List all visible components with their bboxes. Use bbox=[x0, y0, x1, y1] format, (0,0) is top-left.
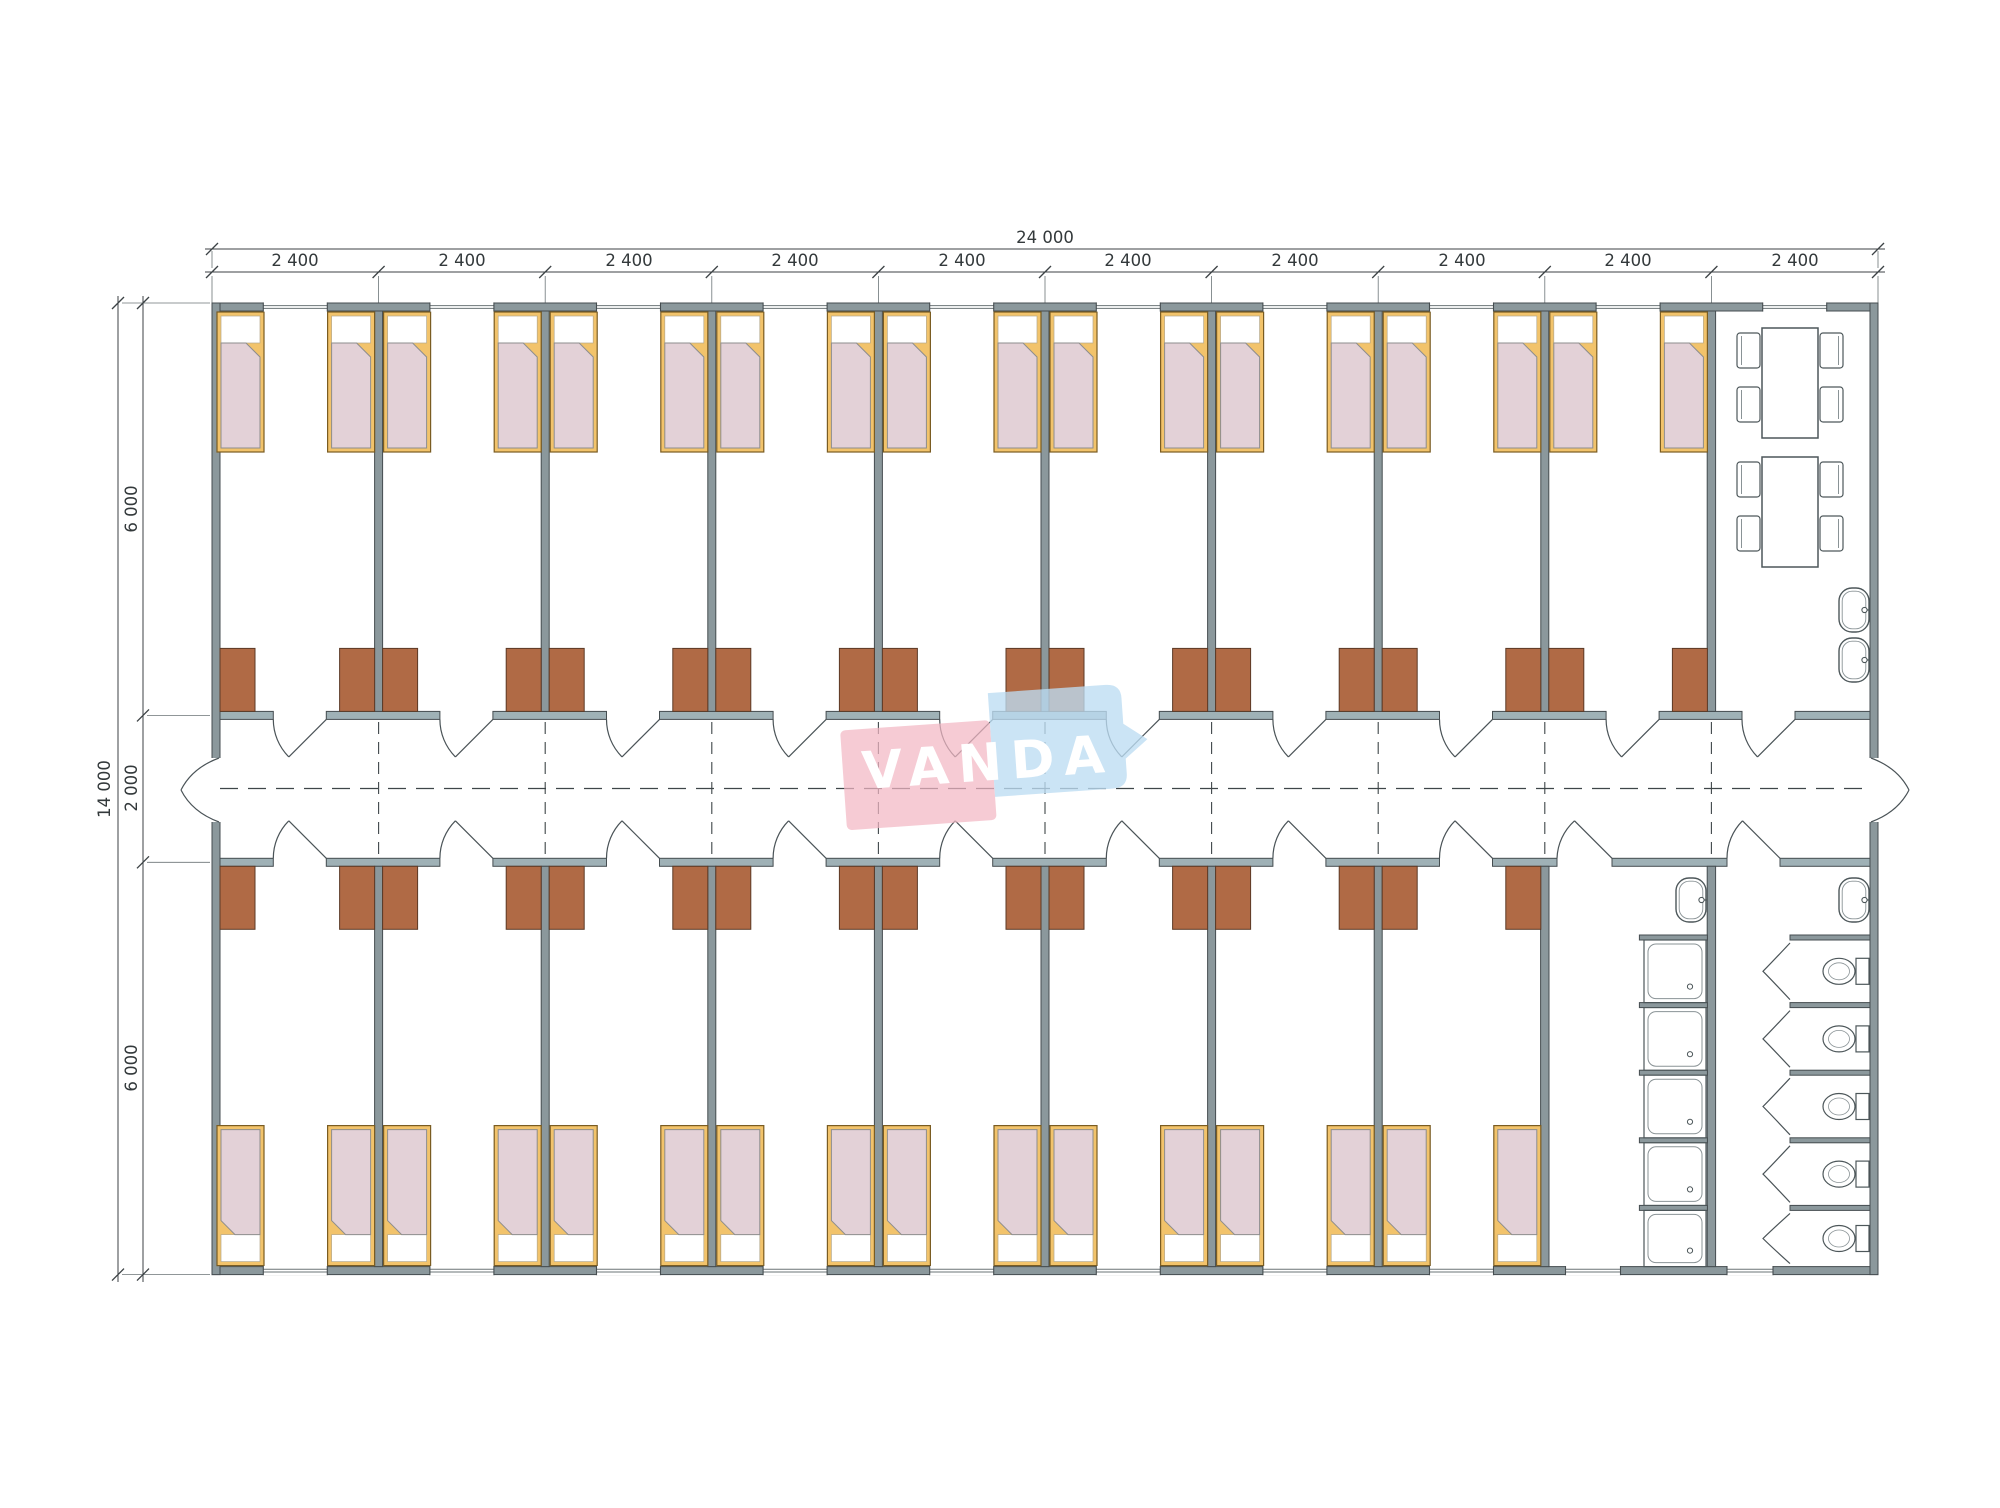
partition-wall bbox=[708, 866, 716, 1266]
bed-duvet bbox=[1054, 1130, 1093, 1235]
bed-duvet bbox=[887, 1130, 926, 1235]
door-swing bbox=[273, 821, 289, 859]
bed bbox=[1494, 312, 1541, 452]
door-leaf bbox=[1455, 719, 1493, 757]
door-leaf bbox=[289, 821, 327, 859]
window bbox=[1727, 1266, 1773, 1275]
bed-pillow bbox=[1165, 316, 1204, 343]
window bbox=[763, 1266, 827, 1275]
wardrobe bbox=[549, 648, 584, 711]
partition-wall bbox=[1041, 866, 1049, 1266]
bed-duvet bbox=[332, 343, 371, 448]
bed-duvet bbox=[221, 1130, 260, 1235]
bed-duvet bbox=[1331, 1130, 1370, 1235]
bed bbox=[661, 312, 708, 452]
wardrobe bbox=[1339, 866, 1374, 929]
bed-pillow bbox=[887, 1235, 926, 1262]
dining-table bbox=[1762, 328, 1818, 438]
sink bbox=[1839, 638, 1870, 682]
bed-pillow bbox=[721, 1235, 760, 1262]
wc-stall-wall bbox=[1790, 1138, 1870, 1143]
bed bbox=[550, 312, 597, 452]
bed-duvet bbox=[1498, 343, 1537, 448]
corridor-wall-bottom bbox=[1326, 858, 1440, 866]
door-leaf bbox=[289, 719, 327, 757]
window bbox=[1430, 1266, 1494, 1275]
bed-pillow bbox=[721, 316, 760, 343]
bed-pillow bbox=[332, 1235, 371, 1262]
door-leaf bbox=[1288, 821, 1326, 859]
door-leaf bbox=[1758, 719, 1796, 757]
bed-pillow bbox=[1664, 316, 1703, 343]
partition-wall bbox=[375, 866, 383, 1266]
partition-wall bbox=[375, 311, 383, 711]
bed-duvet bbox=[721, 343, 760, 448]
bed-duvet bbox=[554, 343, 593, 448]
bed bbox=[883, 312, 930, 452]
shower-tray bbox=[1644, 1210, 1706, 1266]
partition-wall bbox=[1541, 311, 1549, 711]
wardrobe bbox=[1672, 648, 1707, 711]
wardrobe bbox=[673, 648, 708, 711]
door-swing bbox=[773, 821, 789, 859]
bed-pillow bbox=[554, 316, 593, 343]
bed bbox=[1161, 1126, 1208, 1266]
bed-pillow bbox=[221, 316, 260, 343]
corridor-wall-bottom bbox=[1159, 858, 1273, 866]
bed-pillow bbox=[221, 1235, 260, 1262]
corridor-wall-bottom bbox=[1612, 858, 1727, 866]
sink-tap-knob bbox=[1862, 657, 1867, 662]
shower-drain bbox=[1687, 984, 1692, 989]
sink bbox=[1839, 588, 1870, 632]
dim-module-8: 2 400 bbox=[1438, 251, 1485, 270]
partition-wall bbox=[874, 866, 882, 1266]
toilet-tank bbox=[1856, 1226, 1869, 1252]
bed bbox=[717, 1126, 764, 1266]
bed bbox=[1050, 312, 1097, 452]
bed-pillow bbox=[665, 316, 704, 343]
bed bbox=[1217, 1126, 1264, 1266]
shower-partition bbox=[1639, 1205, 1707, 1210]
bed bbox=[494, 312, 541, 452]
window bbox=[1596, 302, 1660, 311]
bed bbox=[1327, 312, 1374, 452]
door-leaf bbox=[455, 719, 493, 757]
sink bbox=[1676, 878, 1707, 922]
bed bbox=[1217, 312, 1264, 452]
bed bbox=[1327, 1126, 1374, 1266]
sink bbox=[1839, 878, 1870, 922]
washroom-wall bbox=[1541, 866, 1549, 1266]
corridor-wall-bottom bbox=[220, 858, 273, 866]
wc-wall bbox=[1707, 866, 1715, 1266]
door-leaf bbox=[622, 821, 660, 859]
wardrobe bbox=[673, 866, 708, 929]
shower-partition bbox=[1639, 1138, 1707, 1143]
chair bbox=[1820, 387, 1843, 422]
bed-duvet bbox=[831, 1130, 870, 1235]
shower-partition bbox=[1639, 1070, 1707, 1075]
door-leaf bbox=[1122, 821, 1160, 859]
window bbox=[930, 1266, 994, 1275]
toilet-bowl bbox=[1823, 1226, 1855, 1252]
wardrobe bbox=[1506, 866, 1541, 929]
toilet-bowl bbox=[1823, 958, 1855, 984]
window bbox=[1096, 302, 1160, 311]
wc-stall-door-swing bbox=[1763, 1011, 1790, 1068]
bed-pillow bbox=[887, 316, 926, 343]
bed-pillow bbox=[1221, 1235, 1260, 1262]
dim-module-1: 2 400 bbox=[271, 251, 318, 270]
wardrobe bbox=[1216, 866, 1251, 929]
chair bbox=[1737, 516, 1760, 551]
corridor-wall-top bbox=[1795, 711, 1870, 719]
partition-wall bbox=[1208, 866, 1216, 1266]
door-leaf bbox=[789, 821, 827, 859]
wardrobe bbox=[1549, 648, 1584, 711]
wardrobe bbox=[1173, 648, 1208, 711]
bed-duvet bbox=[388, 1130, 427, 1235]
window bbox=[430, 1266, 494, 1275]
bed-duvet bbox=[1554, 343, 1593, 448]
bed bbox=[494, 1126, 541, 1266]
toilet-tank bbox=[1856, 1026, 1869, 1052]
dim-module-2: 2 400 bbox=[438, 251, 485, 270]
dim-module-10: 2 400 bbox=[1771, 251, 1818, 270]
bed bbox=[1161, 312, 1208, 452]
corridor-wall-top bbox=[1159, 711, 1273, 719]
window bbox=[430, 302, 494, 311]
bed-duvet bbox=[1165, 343, 1204, 448]
bed-pillow bbox=[1165, 1235, 1204, 1262]
bed bbox=[550, 1126, 597, 1266]
dim-total-width: 24 000 bbox=[1016, 228, 1074, 247]
shower-tray bbox=[1644, 1143, 1706, 1206]
door-swing bbox=[440, 821, 456, 859]
door-leaf bbox=[1575, 821, 1613, 859]
dim-section-top: 6 000 bbox=[122, 485, 141, 532]
wardrobe bbox=[549, 866, 584, 929]
corridor-wall-bottom bbox=[1493, 858, 1558, 866]
bed bbox=[1494, 1126, 1541, 1266]
wardrobe bbox=[839, 648, 874, 711]
window bbox=[1096, 1266, 1160, 1275]
chair bbox=[1820, 333, 1843, 368]
door-swing bbox=[1557, 821, 1575, 859]
dim-module-7: 2 400 bbox=[1271, 251, 1318, 270]
door-swing bbox=[1727, 821, 1743, 859]
wc-stall-wall bbox=[1790, 1070, 1870, 1075]
toilet-tank bbox=[1856, 1161, 1869, 1187]
wardrobe bbox=[340, 866, 375, 929]
wardrobe bbox=[340, 648, 375, 711]
bed-pillow bbox=[1221, 316, 1260, 343]
wardrobe bbox=[220, 866, 255, 929]
dim-section-bottom: 6 000 bbox=[122, 1044, 141, 1091]
wardrobe bbox=[1506, 648, 1541, 711]
wc-stall-wall bbox=[1790, 1003, 1870, 1008]
door-leaf bbox=[789, 719, 827, 757]
bed-pillow bbox=[998, 1235, 1037, 1262]
door-swing bbox=[1440, 821, 1456, 859]
bed-pillow bbox=[1387, 316, 1426, 343]
bed bbox=[994, 312, 1041, 452]
window bbox=[263, 1266, 327, 1275]
dim-module-6: 2 400 bbox=[1104, 251, 1151, 270]
wardrobe bbox=[839, 866, 874, 929]
door-leaf bbox=[1743, 821, 1781, 859]
dim-module-3: 2 400 bbox=[605, 251, 652, 270]
door-swing bbox=[1440, 719, 1456, 757]
bed-duvet bbox=[1331, 343, 1370, 448]
wc-stall-door-swing bbox=[1763, 943, 1790, 1000]
bed bbox=[328, 312, 375, 452]
bed-pillow bbox=[1054, 316, 1093, 343]
chair bbox=[1820, 462, 1843, 497]
wc-stall-door-swing bbox=[1763, 1213, 1790, 1263]
bed-duvet bbox=[1387, 1130, 1426, 1235]
bed bbox=[1660, 312, 1707, 452]
wardrobe bbox=[716, 866, 751, 929]
bed-duvet bbox=[1498, 1130, 1537, 1235]
bed-duvet bbox=[1165, 1130, 1204, 1235]
corridor-wall-top bbox=[493, 711, 607, 719]
shower-drain bbox=[1687, 1119, 1692, 1124]
partition-wall bbox=[1208, 311, 1216, 711]
wardrobe bbox=[882, 648, 917, 711]
bed-duvet bbox=[1221, 343, 1260, 448]
bed bbox=[384, 312, 431, 452]
corridor-wall-top bbox=[660, 711, 774, 719]
shower-partition bbox=[1639, 1003, 1707, 1008]
window bbox=[1263, 302, 1327, 311]
bed-pillow bbox=[1498, 316, 1537, 343]
door-swing bbox=[773, 719, 789, 757]
bed-pillow bbox=[388, 1235, 427, 1262]
window bbox=[597, 302, 661, 311]
bed-duvet bbox=[498, 1130, 537, 1235]
bed-duvet bbox=[887, 343, 926, 448]
bed bbox=[661, 1126, 708, 1266]
shower-drain bbox=[1687, 1052, 1692, 1057]
bed-duvet bbox=[1221, 1130, 1260, 1235]
door-leaf bbox=[1455, 821, 1493, 859]
door-swing bbox=[273, 719, 289, 757]
wardrobe bbox=[506, 648, 541, 711]
chair bbox=[1737, 387, 1760, 422]
corridor-wall-bottom bbox=[993, 858, 1107, 866]
door-swing bbox=[1273, 719, 1289, 757]
chair bbox=[1820, 516, 1843, 551]
sink-tap-knob bbox=[1699, 897, 1704, 902]
wardrobe bbox=[1216, 648, 1251, 711]
partition-wall bbox=[541, 866, 549, 1266]
bed-pillow bbox=[831, 316, 870, 343]
bed-pillow bbox=[554, 1235, 593, 1262]
dim-module-9: 2 400 bbox=[1604, 251, 1651, 270]
shower-tray bbox=[1644, 1075, 1706, 1138]
door-leaf bbox=[622, 719, 660, 757]
chair bbox=[1737, 462, 1760, 497]
bed bbox=[827, 312, 874, 452]
bed-pillow bbox=[1331, 316, 1370, 343]
toilet-bowl bbox=[1823, 1094, 1855, 1120]
partition-wall bbox=[1041, 311, 1049, 711]
shower-tray bbox=[1644, 940, 1706, 1003]
door-swing bbox=[1606, 719, 1622, 757]
window bbox=[930, 302, 994, 311]
bed-pillow bbox=[388, 316, 427, 343]
shower-tray bbox=[1644, 1008, 1706, 1071]
wardrobe bbox=[220, 648, 255, 711]
wardrobe bbox=[1006, 866, 1041, 929]
door-swing bbox=[1106, 821, 1122, 859]
wardrobe bbox=[1382, 866, 1417, 929]
bed bbox=[1383, 1126, 1430, 1266]
wardrobe bbox=[1173, 866, 1208, 929]
corridor-opening-left bbox=[211, 758, 221, 822]
bed-duvet bbox=[665, 343, 704, 448]
wardrobe bbox=[506, 866, 541, 929]
corridor-wall-bottom bbox=[826, 858, 940, 866]
bed bbox=[217, 312, 264, 452]
corridor-wall-top bbox=[1493, 711, 1607, 719]
wc-stall-wall bbox=[1790, 1205, 1870, 1210]
wc-stall-door-swing bbox=[1763, 1146, 1790, 1203]
bed bbox=[717, 312, 764, 452]
dim-total-height: 14 000 bbox=[95, 760, 114, 818]
bed bbox=[1550, 312, 1597, 452]
toilet-tank bbox=[1856, 958, 1869, 984]
corridor-wall-top bbox=[1659, 711, 1742, 719]
bed-duvet bbox=[1664, 343, 1703, 448]
bed-duvet bbox=[998, 343, 1037, 448]
wardrobe bbox=[383, 648, 418, 711]
door-leaf bbox=[955, 821, 993, 859]
wardrobe bbox=[1382, 648, 1417, 711]
shower-drain bbox=[1687, 1248, 1692, 1253]
dim-section-corridor: 2 000 bbox=[122, 764, 141, 811]
window bbox=[1763, 302, 1827, 311]
window bbox=[1430, 302, 1494, 311]
corridor-wall-bottom bbox=[660, 858, 774, 866]
bed-pillow bbox=[1554, 316, 1593, 343]
bed-duvet bbox=[831, 343, 870, 448]
wardrobe bbox=[882, 866, 917, 929]
partition-wall bbox=[1374, 311, 1382, 711]
bed bbox=[217, 1126, 264, 1266]
floor-plan-svg: 24 000 2 400 2 400 2 400 2 400 2 400 2 4… bbox=[0, 0, 2000, 1508]
bed bbox=[994, 1126, 1041, 1266]
toilet-bowl bbox=[1823, 1161, 1855, 1187]
shower-drain bbox=[1687, 1187, 1692, 1192]
bed bbox=[1050, 1126, 1097, 1266]
bed bbox=[883, 1126, 930, 1266]
corridor-wall-bottom bbox=[326, 858, 440, 866]
bed-pillow bbox=[831, 1235, 870, 1262]
bed-duvet bbox=[721, 1130, 760, 1235]
bed-duvet bbox=[998, 1130, 1037, 1235]
bed-pillow bbox=[1498, 1235, 1537, 1262]
partition-wall bbox=[541, 311, 549, 711]
bed-pillow bbox=[498, 1235, 537, 1262]
door-leaf bbox=[1288, 719, 1326, 757]
window bbox=[1566, 1266, 1621, 1275]
bed-duvet bbox=[221, 343, 260, 448]
chair bbox=[1737, 333, 1760, 368]
dim-module-5: 2 400 bbox=[938, 251, 985, 270]
corridor-wall-bottom bbox=[1780, 858, 1870, 866]
corridor-wall-top bbox=[220, 711, 273, 719]
partition-wall bbox=[708, 311, 716, 711]
wardrobe bbox=[383, 866, 418, 929]
bed-pillow bbox=[1054, 1235, 1093, 1262]
window bbox=[597, 1266, 661, 1275]
door-swing bbox=[607, 719, 623, 757]
door-swing bbox=[607, 821, 623, 859]
bed-pillow bbox=[498, 316, 537, 343]
corridor-wall-top bbox=[826, 711, 940, 719]
wc-stall-door-swing bbox=[1763, 1078, 1790, 1135]
dining-wall bbox=[1707, 311, 1715, 711]
bed-duvet bbox=[1387, 343, 1426, 448]
bed-duvet bbox=[332, 1130, 371, 1235]
sink-tap-knob bbox=[1862, 607, 1867, 612]
bed bbox=[1383, 312, 1430, 452]
bed bbox=[827, 1126, 874, 1266]
bed-pillow bbox=[665, 1235, 704, 1262]
door-leaf bbox=[1622, 719, 1660, 757]
window bbox=[1263, 1266, 1327, 1275]
sink-tap-knob bbox=[1862, 897, 1867, 902]
toilet-tank bbox=[1856, 1094, 1869, 1120]
wardrobe bbox=[1339, 648, 1374, 711]
wardrobe bbox=[1049, 866, 1084, 929]
dining-table bbox=[1762, 457, 1818, 567]
window bbox=[763, 302, 827, 311]
window bbox=[263, 302, 327, 311]
toilet-bowl bbox=[1823, 1026, 1855, 1052]
wardrobe bbox=[716, 648, 751, 711]
door-swing bbox=[440, 719, 456, 757]
bed-duvet bbox=[665, 1130, 704, 1235]
door-swing bbox=[1273, 821, 1289, 859]
corridor-wall-bottom bbox=[493, 858, 607, 866]
door-swing bbox=[1742, 719, 1758, 757]
corridor-wall-top bbox=[326, 711, 440, 719]
dim-module-4: 2 400 bbox=[771, 251, 818, 270]
bed-duvet bbox=[388, 343, 427, 448]
bed-pillow bbox=[1387, 1235, 1426, 1262]
bed-pillow bbox=[998, 316, 1037, 343]
door-swing bbox=[940, 821, 956, 859]
partition-wall bbox=[1374, 866, 1382, 1266]
partition-wall bbox=[874, 311, 882, 711]
bed-pillow bbox=[1331, 1235, 1370, 1262]
floor-plan-page: 24 000 2 400 2 400 2 400 2 400 2 400 2 4… bbox=[0, 0, 2000, 1508]
bed-duvet bbox=[498, 343, 537, 448]
bed bbox=[384, 1126, 431, 1266]
bed bbox=[328, 1126, 375, 1266]
bed-pillow bbox=[332, 316, 371, 343]
corridor-wall-top bbox=[1326, 711, 1440, 719]
corridor-opening-right bbox=[1869, 758, 1879, 822]
door-leaf bbox=[455, 821, 493, 859]
bed-duvet bbox=[1054, 343, 1093, 448]
bed-duvet bbox=[554, 1130, 593, 1235]
shower-partition bbox=[1639, 935, 1707, 940]
